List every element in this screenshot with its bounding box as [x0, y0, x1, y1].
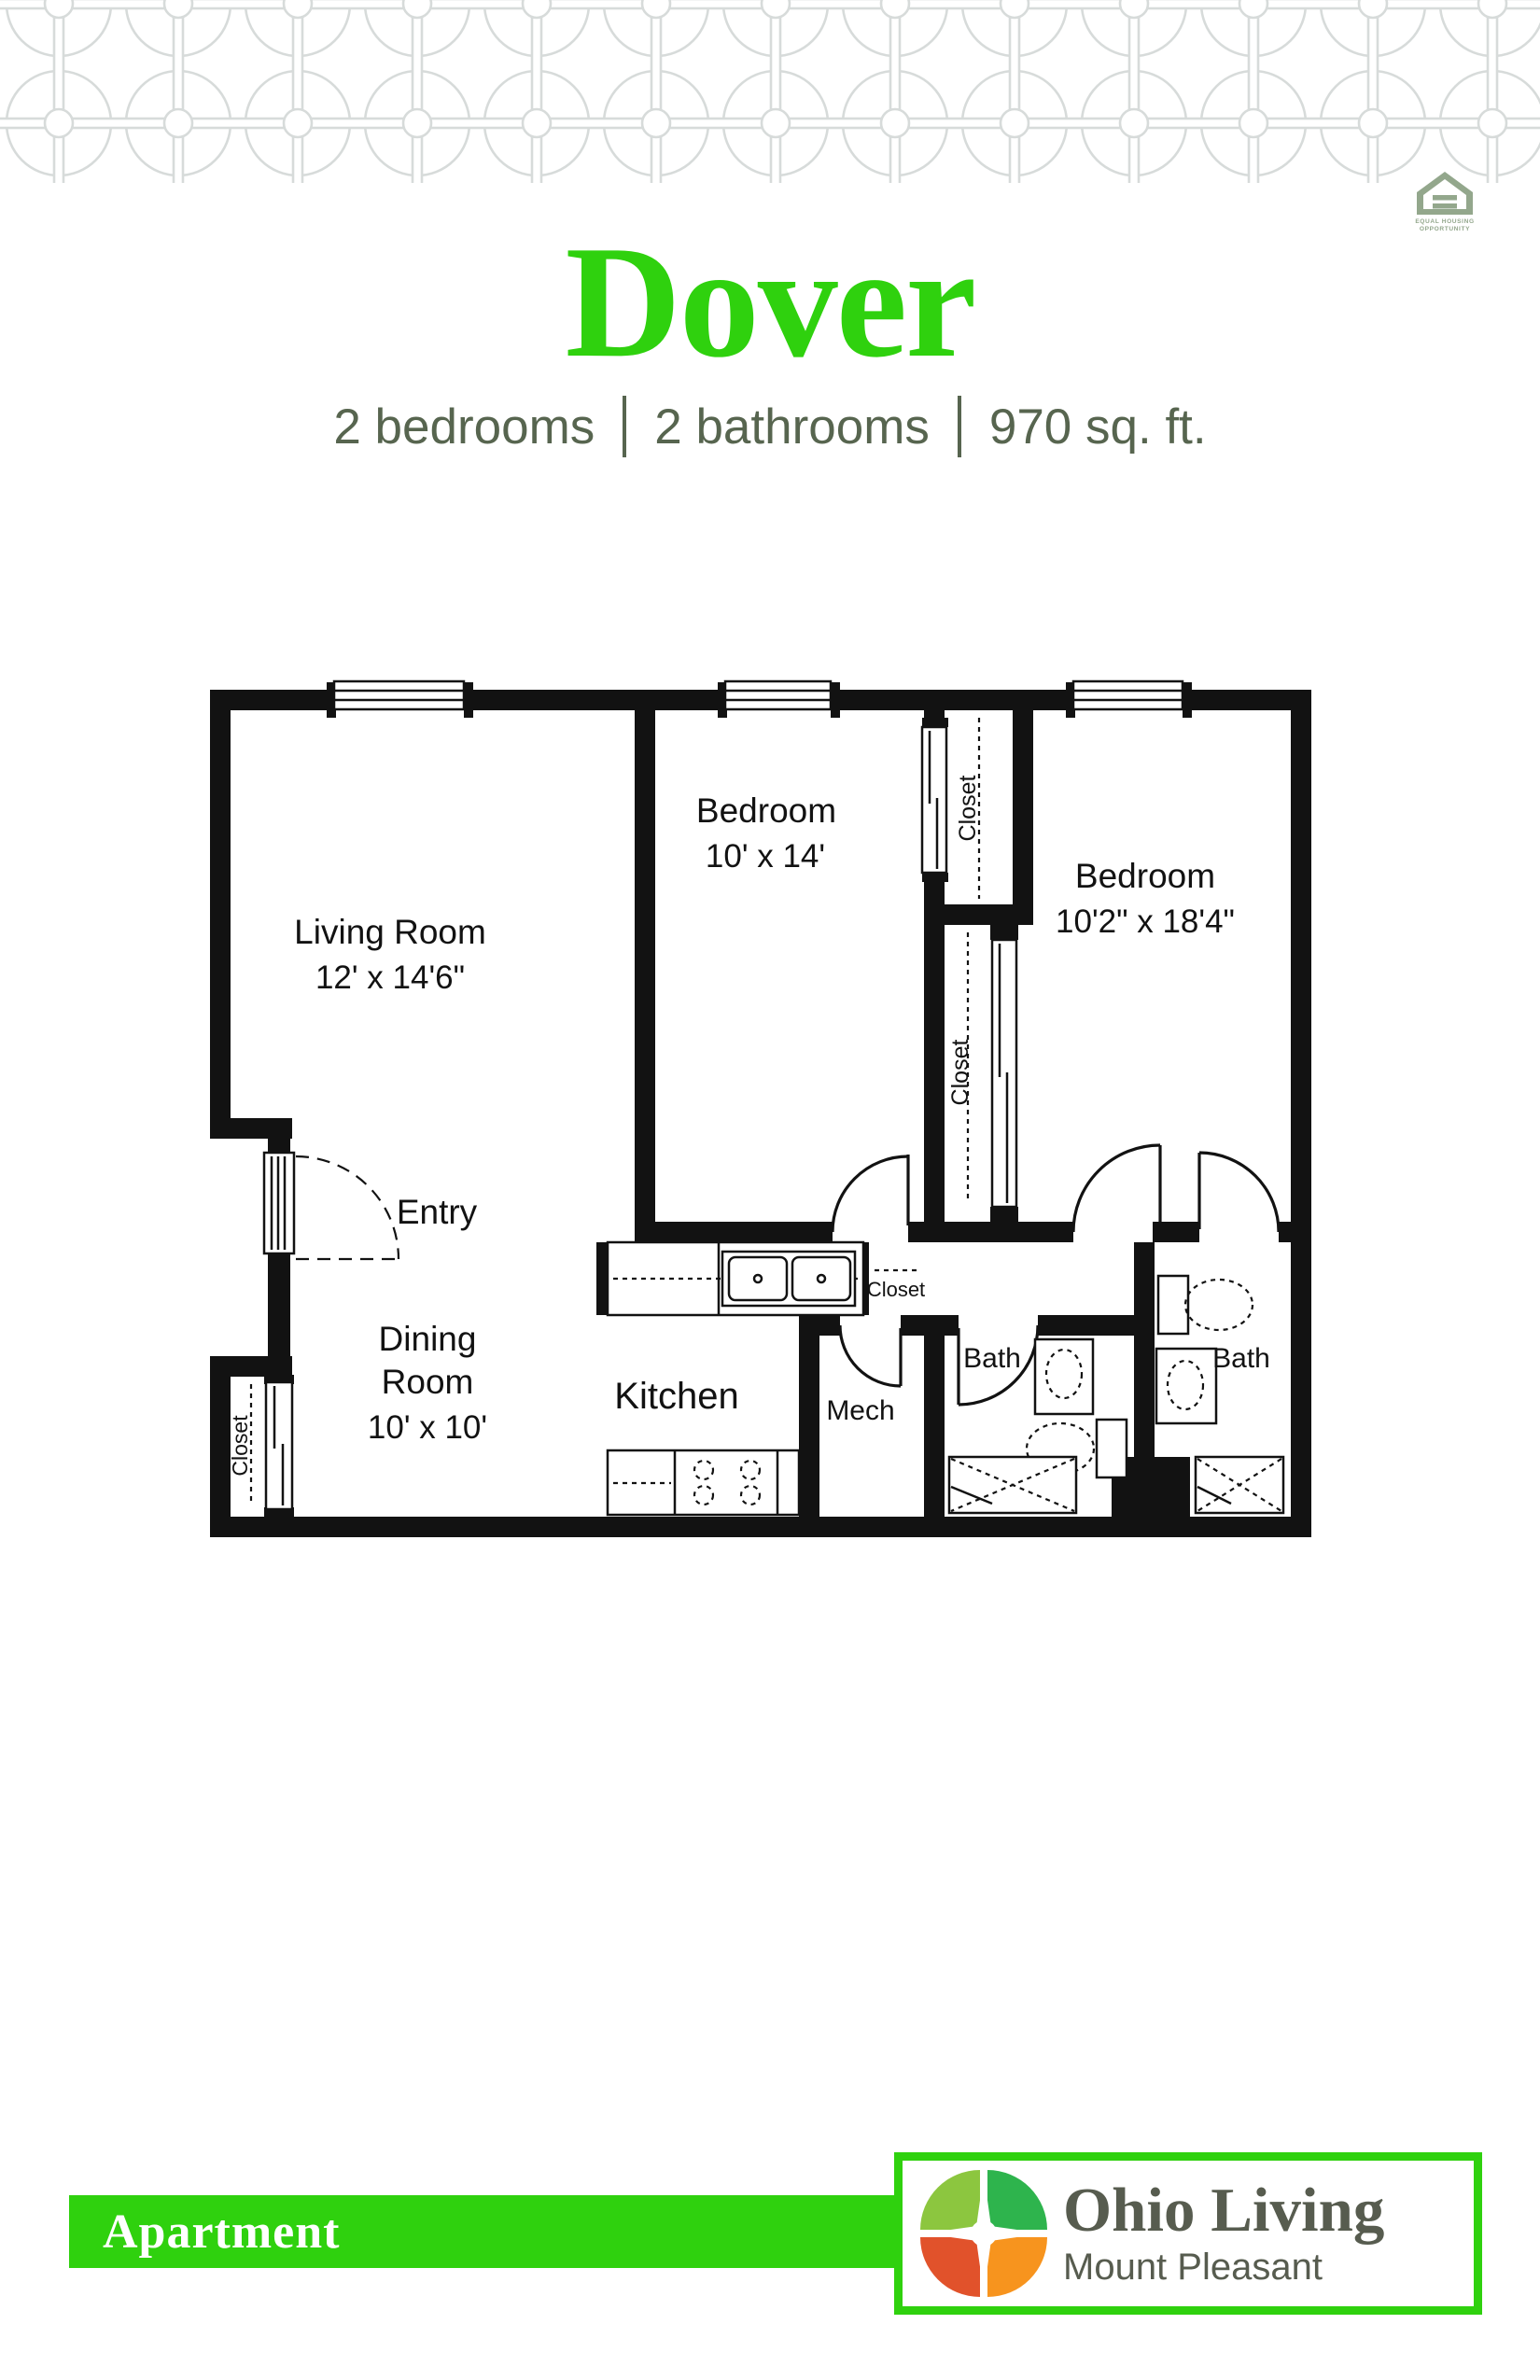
- room-label-entry: Entry: [397, 1193, 478, 1231]
- closet-label-bedroom1: Closet: [955, 776, 981, 842]
- page-title: Dover: [0, 222, 1540, 383]
- closet-label-entry: Closet: [228, 1415, 252, 1477]
- divider: [623, 396, 626, 457]
- unit-summary: 2 bedrooms 2 bathrooms 970 sq. ft.: [0, 396, 1540, 457]
- room-label-dining-2: Room: [382, 1363, 474, 1401]
- room-dims-bedroom2: 10'2" x 18'4": [1056, 903, 1235, 940]
- entry-door-icon: [264, 1153, 399, 1259]
- kitchen-stove-icon: [608, 1450, 799, 1515]
- kitchen-counter-icon: [608, 1242, 863, 1315]
- room-dims-bedroom1: 10' x 14': [706, 838, 825, 875]
- floor-plan: Living Room 12' x 14'6" Bedroom 10' x 14…: [210, 662, 1311, 1537]
- room-label-bedroom1: Bedroom: [696, 791, 836, 830]
- square-footage: 970 sq. ft.: [989, 399, 1207, 455]
- flower-pattern-icon: [0, 0, 1540, 183]
- divider: [958, 396, 961, 457]
- brand-name: Ohio Living: [1063, 2177, 1384, 2243]
- room-dims-dining: 10' x 10': [368, 1409, 487, 1446]
- flyer-page: EQUAL HOUSING OPPORTUNITY Dover 2 bedroo…: [0, 0, 1540, 2380]
- room-label-bath1: Bath: [963, 1343, 1021, 1374]
- room-label-bedroom2: Bedroom: [1075, 857, 1215, 895]
- room-label-mech: Mech: [826, 1395, 894, 1426]
- unit-type-label: Apartment: [69, 2205, 341, 2260]
- bedrooms-count: 2 bedrooms: [333, 399, 595, 455]
- room-label-living: Living Room: [294, 913, 486, 951]
- decorative-pattern-band: [0, 0, 1540, 183]
- brand-community: Mount Pleasant: [1063, 2245, 1384, 2289]
- brand-logo-box: Ohio Living Mount Pleasant: [894, 2152, 1482, 2315]
- room-dims-living: 12' x 14'6": [315, 959, 465, 996]
- room-label-bath2: Bath: [1212, 1343, 1270, 1374]
- room-label-kitchen: Kitchen: [614, 1376, 738, 1417]
- ohio-living-emblem-icon: [914, 2163, 1054, 2303]
- closet-label-hall: Closet: [867, 1278, 925, 1301]
- bathrooms-count: 2 bathrooms: [654, 399, 930, 455]
- room-label-dining-1: Dining: [379, 1320, 477, 1358]
- closet-label-bedroom2: Closet: [947, 1040, 973, 1106]
